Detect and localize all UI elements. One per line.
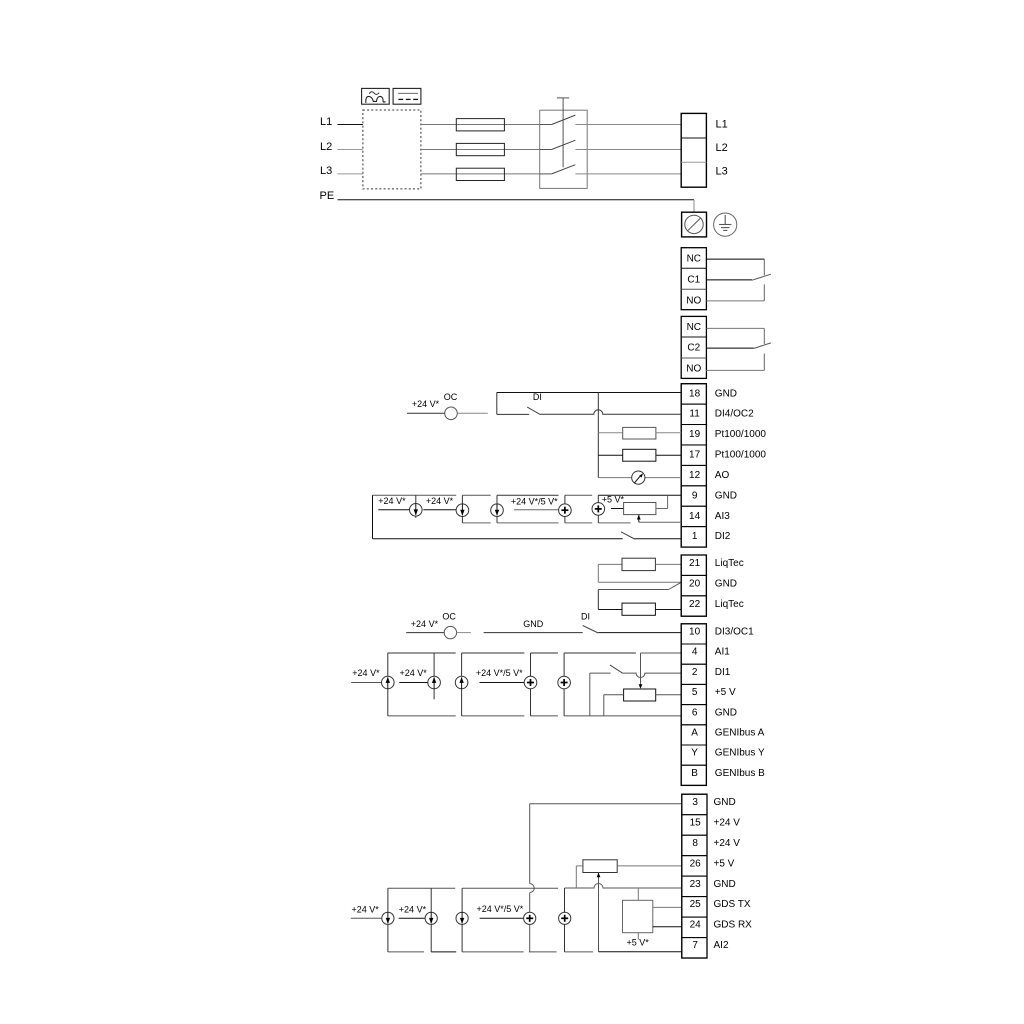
svg-text:+24 V*: +24 V* <box>378 496 406 506</box>
svg-text:6: 6 <box>692 707 698 718</box>
svg-text:8: 8 <box>692 838 698 849</box>
svg-text:GND: GND <box>714 879 736 890</box>
svg-text:GND: GND <box>715 578 737 589</box>
svg-text:AO: AO <box>715 470 730 481</box>
svg-text:Pt100/1000: Pt100/1000 <box>715 429 767 440</box>
svg-text:DI2: DI2 <box>715 531 731 542</box>
svg-text:3: 3 <box>692 797 698 808</box>
svg-text:17: 17 <box>689 450 701 461</box>
svg-text:GND: GND <box>715 490 737 501</box>
svg-text:14: 14 <box>689 511 701 522</box>
svg-text:5: 5 <box>692 687 698 698</box>
svg-text:Pt100/1000: Pt100/1000 <box>715 450 767 461</box>
svg-text:L3: L3 <box>716 165 728 177</box>
svg-text:LiqTec: LiqTec <box>715 558 744 569</box>
svg-text:18: 18 <box>689 388 701 399</box>
svg-text:NC: NC <box>687 253 701 264</box>
svg-text:GENIbus A: GENIbus A <box>715 728 765 739</box>
svg-text:+5 V*: +5 V* <box>627 938 650 948</box>
svg-text:DI1: DI1 <box>715 667 731 678</box>
svg-text:+24 V*/5 V*: +24 V*/5 V* <box>477 904 524 914</box>
svg-text:DI3/OC1: DI3/OC1 <box>715 627 754 638</box>
svg-text:26: 26 <box>690 858 702 869</box>
svg-text:24: 24 <box>690 920 702 931</box>
svg-text:+24 V*: +24 V* <box>352 668 380 678</box>
svg-text:NC: NC <box>687 322 701 333</box>
svg-text:DI4/OC2: DI4/OC2 <box>715 409 754 420</box>
svg-text:GENIbus B: GENIbus B <box>715 768 765 779</box>
svg-text:+5 V: +5 V <box>714 858 735 869</box>
svg-text:12: 12 <box>689 470 701 481</box>
svg-text:B: B <box>691 768 698 779</box>
svg-text:9: 9 <box>692 490 698 501</box>
svg-text:10: 10 <box>689 627 701 638</box>
svg-text:20: 20 <box>689 578 701 589</box>
svg-text:1: 1 <box>692 531 698 542</box>
svg-text:25: 25 <box>690 899 702 910</box>
svg-text:DI: DI <box>581 612 590 622</box>
svg-text:+24 V: +24 V <box>714 817 741 828</box>
svg-text:GENIbus Y: GENIbus Y <box>715 748 765 759</box>
svg-text:NO: NO <box>686 296 701 307</box>
svg-text:L2: L2 <box>716 142 728 154</box>
svg-text:GDS TX: GDS TX <box>714 899 751 910</box>
svg-text:AI1: AI1 <box>715 647 730 658</box>
svg-text:C1: C1 <box>687 274 700 285</box>
svg-text:L1: L1 <box>716 118 728 130</box>
svg-text:22: 22 <box>689 599 701 610</box>
svg-text:GDS RX: GDS RX <box>714 920 753 931</box>
svg-text:LiqTec: LiqTec <box>715 599 744 610</box>
svg-text:AI3: AI3 <box>715 511 730 522</box>
svg-text:GND: GND <box>715 388 737 399</box>
svg-text:+24 V*: +24 V* <box>412 399 440 409</box>
svg-text:GND: GND <box>714 797 736 808</box>
svg-text:+24 V*: +24 V* <box>411 619 439 629</box>
svg-text:L1: L1 <box>320 116 332 128</box>
svg-text:C2: C2 <box>687 343 700 354</box>
svg-text:GND: GND <box>523 619 544 629</box>
svg-text:+5 V*: +5 V* <box>602 495 625 505</box>
svg-text:DI: DI <box>533 392 542 402</box>
svg-text:NO: NO <box>686 364 701 375</box>
svg-text:A: A <box>691 728 698 739</box>
svg-text:L2: L2 <box>320 141 332 153</box>
svg-text:PE: PE <box>320 190 335 202</box>
svg-text:+24 V*: +24 V* <box>399 904 427 914</box>
svg-text:2: 2 <box>692 667 698 678</box>
svg-text:15: 15 <box>690 817 702 828</box>
svg-text:+24 V*/5 V*: +24 V*/5 V* <box>476 668 523 678</box>
svg-text:+24 V*: +24 V* <box>400 668 428 678</box>
svg-text:+5 V: +5 V <box>715 687 736 698</box>
svg-text:4: 4 <box>692 647 698 658</box>
svg-text:7: 7 <box>692 940 698 951</box>
svg-text:OC: OC <box>442 612 456 622</box>
svg-text:L3: L3 <box>320 165 332 177</box>
svg-text:11: 11 <box>689 409 700 420</box>
svg-text:23: 23 <box>690 879 702 890</box>
svg-text:21: 21 <box>689 558 701 569</box>
svg-text:OC: OC <box>444 392 458 402</box>
svg-text:GND: GND <box>715 707 737 718</box>
svg-text:+24 V*: +24 V* <box>352 904 380 914</box>
svg-text:+24 V: +24 V <box>714 838 741 849</box>
svg-text:AI2: AI2 <box>714 940 729 951</box>
svg-text:Y: Y <box>691 748 698 759</box>
svg-text:19: 19 <box>689 429 701 440</box>
svg-text:+24 V*/5 V*: +24 V*/5 V* <box>511 496 558 506</box>
svg-text:+24 V*: +24 V* <box>426 496 454 506</box>
